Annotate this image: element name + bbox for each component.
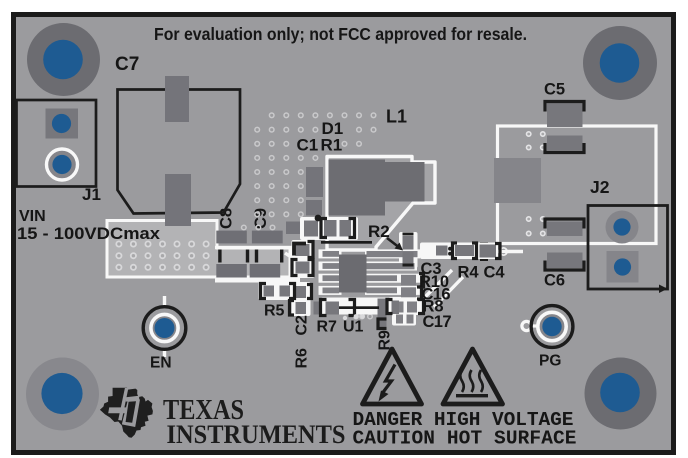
svg-text:C17: C17: [423, 313, 452, 331]
svg-text:For evaluation only; not FCC a: For evaluation only; not FCC approved fo…: [154, 24, 527, 44]
svg-text:CAUTION HOT SURFACE: CAUTION HOT SURFACE: [353, 428, 577, 450]
svg-text:C5: C5: [544, 81, 565, 99]
svg-text:R1: R1: [321, 136, 343, 155]
svg-text:PG: PG: [539, 353, 561, 370]
svg-text:R4: R4: [458, 264, 480, 282]
svg-text:L1: L1: [386, 107, 407, 127]
svg-text:C2: C2: [294, 315, 311, 336]
svg-text:R6: R6: [294, 348, 311, 369]
svg-text:R5: R5: [264, 303, 285, 320]
svg-text:R2: R2: [368, 222, 390, 241]
svg-text:C7: C7: [115, 54, 139, 75]
svg-text:U1: U1: [343, 319, 364, 336]
svg-text:C8: C8: [218, 208, 236, 229]
svg-text:J2: J2: [590, 177, 610, 197]
svg-text:J1: J1: [82, 185, 101, 204]
svg-text:VIN: VIN: [19, 208, 46, 225]
svg-text:C6: C6: [544, 272, 565, 290]
svg-text:C9: C9: [252, 208, 270, 229]
svg-text:C4: C4: [484, 264, 506, 282]
svg-text:C1: C1: [297, 136, 319, 155]
svg-text:R7: R7: [317, 319, 338, 336]
svg-text:EN: EN: [150, 355, 172, 372]
svg-text:15 - 100VDCmax: 15 - 100VDCmax: [17, 225, 161, 243]
svg-text:INSTRUMENTS: INSTRUMENTS: [167, 420, 346, 449]
